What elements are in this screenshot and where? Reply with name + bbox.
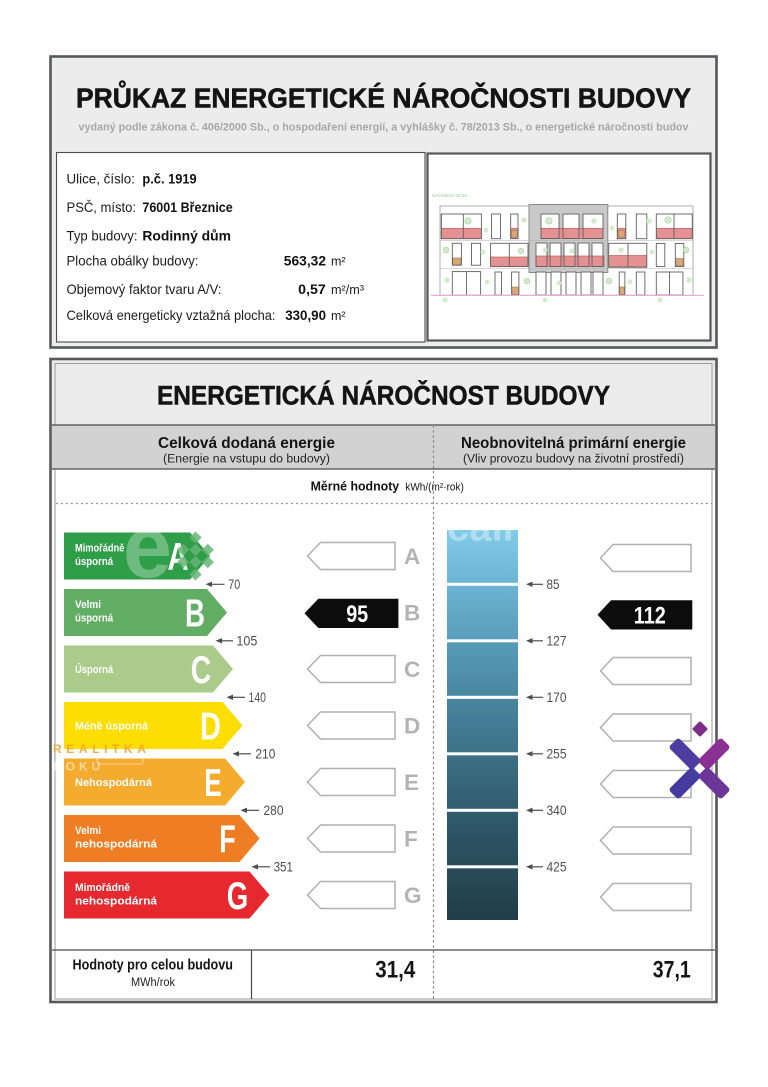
svg-text:C: C	[191, 649, 212, 692]
svg-text:F: F	[219, 819, 236, 862]
svg-text:nehospodárná: nehospodárná	[75, 896, 158, 908]
svg-text:úsporná: úsporná	[75, 556, 114, 568]
svg-text:E: E	[404, 770, 419, 795]
svg-text:255: 255	[547, 747, 567, 762]
svg-text:C: C	[404, 657, 420, 682]
svg-text:D: D	[404, 713, 420, 738]
svg-text:m²: m²	[331, 255, 346, 269]
svg-text:Velmi: Velmi	[75, 825, 101, 837]
svg-text:Méně úsporná: Méně úsporná	[75, 721, 149, 733]
svg-text:425: 425	[547, 860, 567, 875]
svg-text:Celková dodaná energie: Celková dodaná energie	[158, 435, 335, 452]
svg-text:m²: m²	[331, 309, 346, 323]
svg-text:F: F	[404, 826, 418, 851]
svg-text:Ulice, číslo:: Ulice, číslo:	[67, 171, 135, 187]
svg-text:nehospodárná: nehospodárná	[75, 839, 158, 851]
svg-text:e: e	[123, 497, 172, 596]
svg-text:127: 127	[547, 634, 567, 649]
svg-text:(Energie na vstupu do budovy): (Energie na vstupu do budovy)	[163, 454, 330, 466]
svg-text:B: B	[404, 600, 420, 625]
svg-text:úsporná: úsporná	[75, 613, 114, 625]
svg-text:140: 140	[249, 690, 267, 705]
svg-text:D: D	[200, 706, 221, 749]
svg-text:p.č. 1919: p.č. 1919	[142, 171, 196, 187]
svg-text:Úsporná: Úsporná	[75, 663, 114, 676]
svg-text:85: 85	[547, 577, 560, 592]
svg-text:REALITKA: REALITKA	[53, 742, 150, 756]
svg-text:PSČ, místo:: PSČ, místo:	[67, 199, 137, 215]
svg-text:37,1: 37,1	[653, 957, 691, 984]
svg-text:Neobnovitelná primární energie: Neobnovitelná primární energie	[461, 435, 686, 452]
svg-text:(Vliv provozu budovy na životn: (Vliv provozu budovy na životní prostřed…	[463, 454, 684, 466]
svg-text:E: E	[204, 762, 222, 805]
svg-text:280: 280	[264, 803, 284, 818]
svg-text:call: call	[447, 506, 514, 550]
svg-text:112: 112	[634, 602, 666, 629]
svg-text:Plocha obálky budovy:: Plocha obálky budovy:	[67, 253, 199, 269]
svg-text:210: 210	[255, 747, 275, 762]
svg-text:Nehospodárná: Nehospodárná	[75, 777, 153, 789]
svg-text:A: A	[404, 544, 420, 569]
svg-text:340: 340	[547, 803, 567, 818]
svg-text:G: G	[227, 875, 249, 918]
svg-text:95: 95	[346, 601, 368, 628]
svg-text:351: 351	[274, 860, 293, 875]
svg-text:Velmi: Velmi	[75, 599, 101, 611]
svg-text:563,32: 563,32	[284, 253, 326, 269]
svg-text:Celková energeticky vztažná pl: Celková energeticky vztažná plocha:	[67, 307, 276, 323]
svg-text:31,4: 31,4	[375, 957, 416, 984]
svg-text:Mimořádně: Mimořádně	[75, 543, 124, 555]
svg-text:170: 170	[547, 690, 567, 705]
svg-text:MWh/rok: MWh/rok	[131, 977, 175, 989]
svg-text:G: G	[404, 883, 422, 908]
svg-text:0,57: 0,57	[298, 281, 326, 297]
svg-text:Objemový faktor tvaru A/V:: Objemový faktor tvaru A/V:	[67, 281, 222, 297]
svg-text:T: T	[56, 773, 64, 787]
svg-text:Hodnoty pro celou budovu: Hodnoty pro celou budovu	[73, 958, 234, 974]
svg-text:330,90: 330,90	[285, 307, 326, 323]
svg-text:ENERGETICKÁ NÁROČNOST BUDOVY: ENERGETICKÁ NÁROČNOST BUDOVY	[157, 380, 610, 411]
svg-text:HAUSBAU 05.04: HAUSBAU 05.04	[432, 193, 467, 198]
svg-text:PRŮKAZ ENERGETICKÉ NÁROČNOSTI: PRŮKAZ ENERGETICKÉ NÁROČNOSTI BUDOVY	[76, 81, 691, 114]
svg-text:B: B	[185, 593, 205, 636]
svg-text:105: 105	[236, 634, 257, 649]
svg-text:vydaný podle zákona č. 406/200: vydaný podle zákona č. 406/2000 Sb., o h…	[79, 122, 689, 134]
svg-text:70: 70	[228, 577, 240, 592]
svg-text:m²/m³: m²/m³	[331, 283, 364, 297]
svg-text:Typ budovy:: Typ budovy:	[67, 228, 138, 244]
svg-text:kWh/(m²·rok): kWh/(m²·rok)	[405, 482, 464, 494]
svg-text:Měrné hodnoty: Měrné hodnoty	[311, 479, 400, 494]
svg-text:Mimořádně: Mimořádně	[75, 882, 130, 894]
svg-text:76001 Březnice: 76001 Březnice	[142, 199, 232, 215]
svg-text:Rodinný dům: Rodinný dům	[142, 228, 231, 244]
